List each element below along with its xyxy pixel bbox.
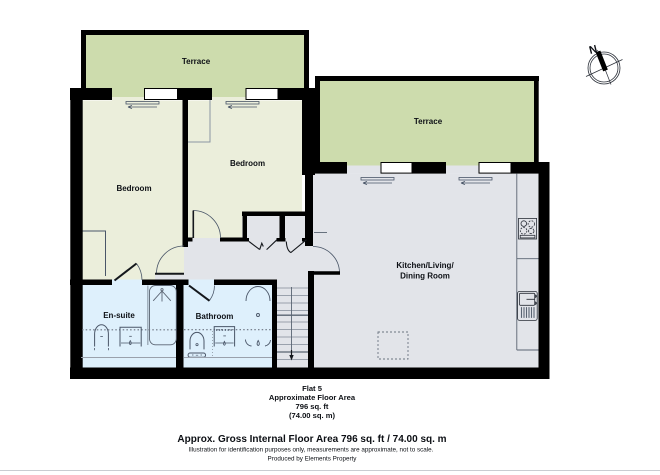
svg-text:Approximate Floor Area: Approximate Floor Area [269, 393, 356, 402]
svg-text:796 sq. ft: 796 sq. ft [296, 402, 329, 411]
svg-text:Bedroom: Bedroom [116, 184, 151, 193]
svg-text:Produced by Elements Property: Produced by Elements Property [268, 456, 358, 463]
svg-text:Bedroom: Bedroom [230, 159, 265, 168]
svg-text:En-suite: En-suite [103, 311, 135, 320]
svg-text:N: N [588, 43, 599, 57]
svg-text:Terrace: Terrace [182, 57, 211, 66]
svg-text:Flat 5: Flat 5 [302, 384, 323, 393]
svg-text:(74.00 sq. m): (74.00 sq. m) [289, 411, 335, 420]
svg-text:Kitchen/Living/: Kitchen/Living/ [396, 261, 454, 270]
svg-text:Illustration for identificatio: Illustration for identification purposes… [189, 447, 434, 454]
svg-text:Dining Room: Dining Room [400, 272, 450, 281]
svg-text:Bathroom: Bathroom [196, 312, 234, 321]
svg-text:Approx. Gross Internal Floor A: Approx. Gross Internal Floor Area 796 sq… [177, 434, 446, 445]
svg-text:Terrace: Terrace [414, 117, 443, 126]
